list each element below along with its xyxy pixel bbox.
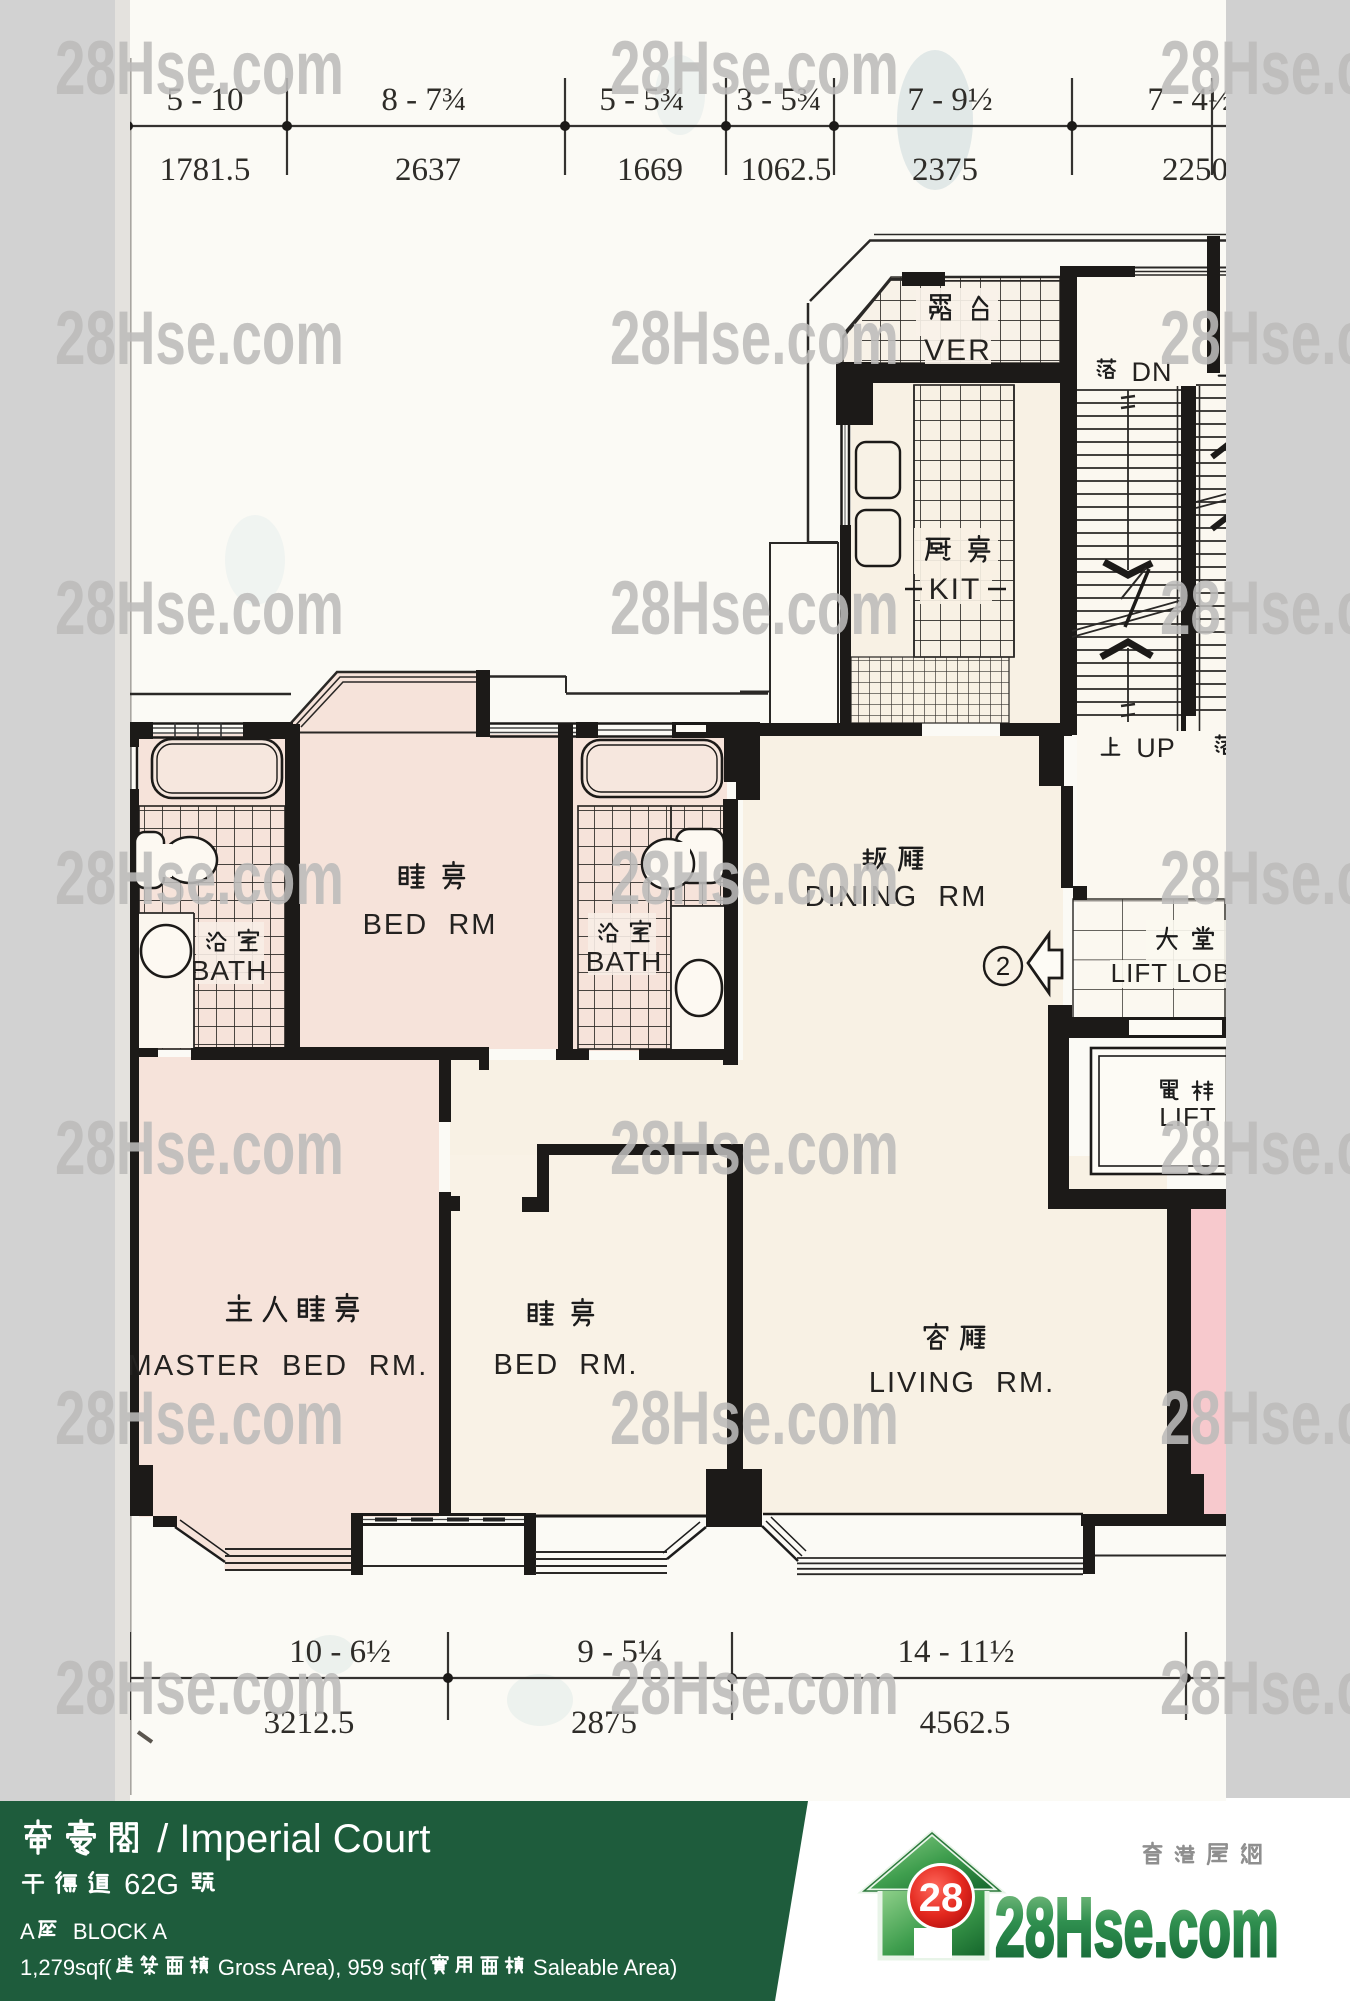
svg-text:28Hse.com: 28Hse.com bbox=[610, 26, 899, 111]
svg-text:28Hse.com: 28Hse.com bbox=[55, 566, 344, 651]
svg-text:28Hse.com: 28Hse.com bbox=[1160, 26, 1350, 111]
svg-text:LIFT LOB: LIFT LOB bbox=[1111, 958, 1232, 988]
svg-text:BATH: BATH bbox=[586, 946, 663, 977]
svg-text:2637: 2637 bbox=[395, 152, 461, 188]
svg-text:4562.5: 4562.5 bbox=[920, 1705, 1011, 1741]
svg-text:KIT: KIT bbox=[929, 573, 982, 606]
svg-text:7 - 9½: 7 - 9½ bbox=[907, 82, 992, 118]
svg-text:28Hse.com: 28Hse.com bbox=[610, 1646, 899, 1731]
svg-text:UP: UP bbox=[1136, 733, 1176, 763]
svg-text:28Hse.com: 28Hse.com bbox=[55, 296, 344, 381]
svg-text:28Hse.com: 28Hse.com bbox=[55, 1376, 344, 1461]
svg-text:28Hse.com: 28Hse.com bbox=[55, 1646, 344, 1731]
svg-text:1669: 1669 bbox=[617, 152, 683, 188]
svg-text:28Hse.com: 28Hse.com bbox=[1160, 566, 1350, 651]
svg-text:8 - 7¾: 8 - 7¾ bbox=[381, 82, 466, 118]
svg-text:28Hse.com: 28Hse.com bbox=[610, 566, 899, 651]
svg-text:28Hse.com: 28Hse.com bbox=[1160, 1376, 1350, 1461]
svg-text:28Hse.com: 28Hse.com bbox=[610, 836, 899, 921]
svg-text:28Hse.com: 28Hse.com bbox=[55, 26, 344, 111]
svg-text:28Hse.com: 28Hse.com bbox=[55, 836, 344, 921]
svg-text:28Hse.com: 28Hse.com bbox=[1160, 836, 1350, 921]
svg-text:28Hse.com: 28Hse.com bbox=[1160, 1106, 1350, 1191]
svg-text:2: 2 bbox=[996, 951, 1010, 981]
svg-text:VER: VER bbox=[924, 334, 992, 367]
svg-text:BATH: BATH bbox=[191, 955, 268, 986]
svg-text:28Hse.com: 28Hse.com bbox=[55, 1106, 344, 1191]
svg-text:28Hse.com: 28Hse.com bbox=[610, 1376, 899, 1461]
svg-text:2375: 2375 bbox=[912, 152, 978, 188]
svg-text:1781.5: 1781.5 bbox=[160, 152, 251, 188]
svg-text:28Hse.com: 28Hse.com bbox=[610, 1106, 899, 1191]
svg-text:2250: 2250 bbox=[1162, 152, 1228, 188]
svg-text:28Hse.com: 28Hse.com bbox=[610, 296, 899, 381]
svg-text:14 - 11½: 14 - 11½ bbox=[897, 1634, 1014, 1670]
svg-text:28Hse.com: 28Hse.com bbox=[1160, 1646, 1350, 1731]
svg-text:BED RM: BED RM bbox=[363, 909, 498, 941]
svg-text:28Hse.com: 28Hse.com bbox=[1160, 296, 1350, 381]
svg-text:1062.5: 1062.5 bbox=[741, 152, 832, 188]
